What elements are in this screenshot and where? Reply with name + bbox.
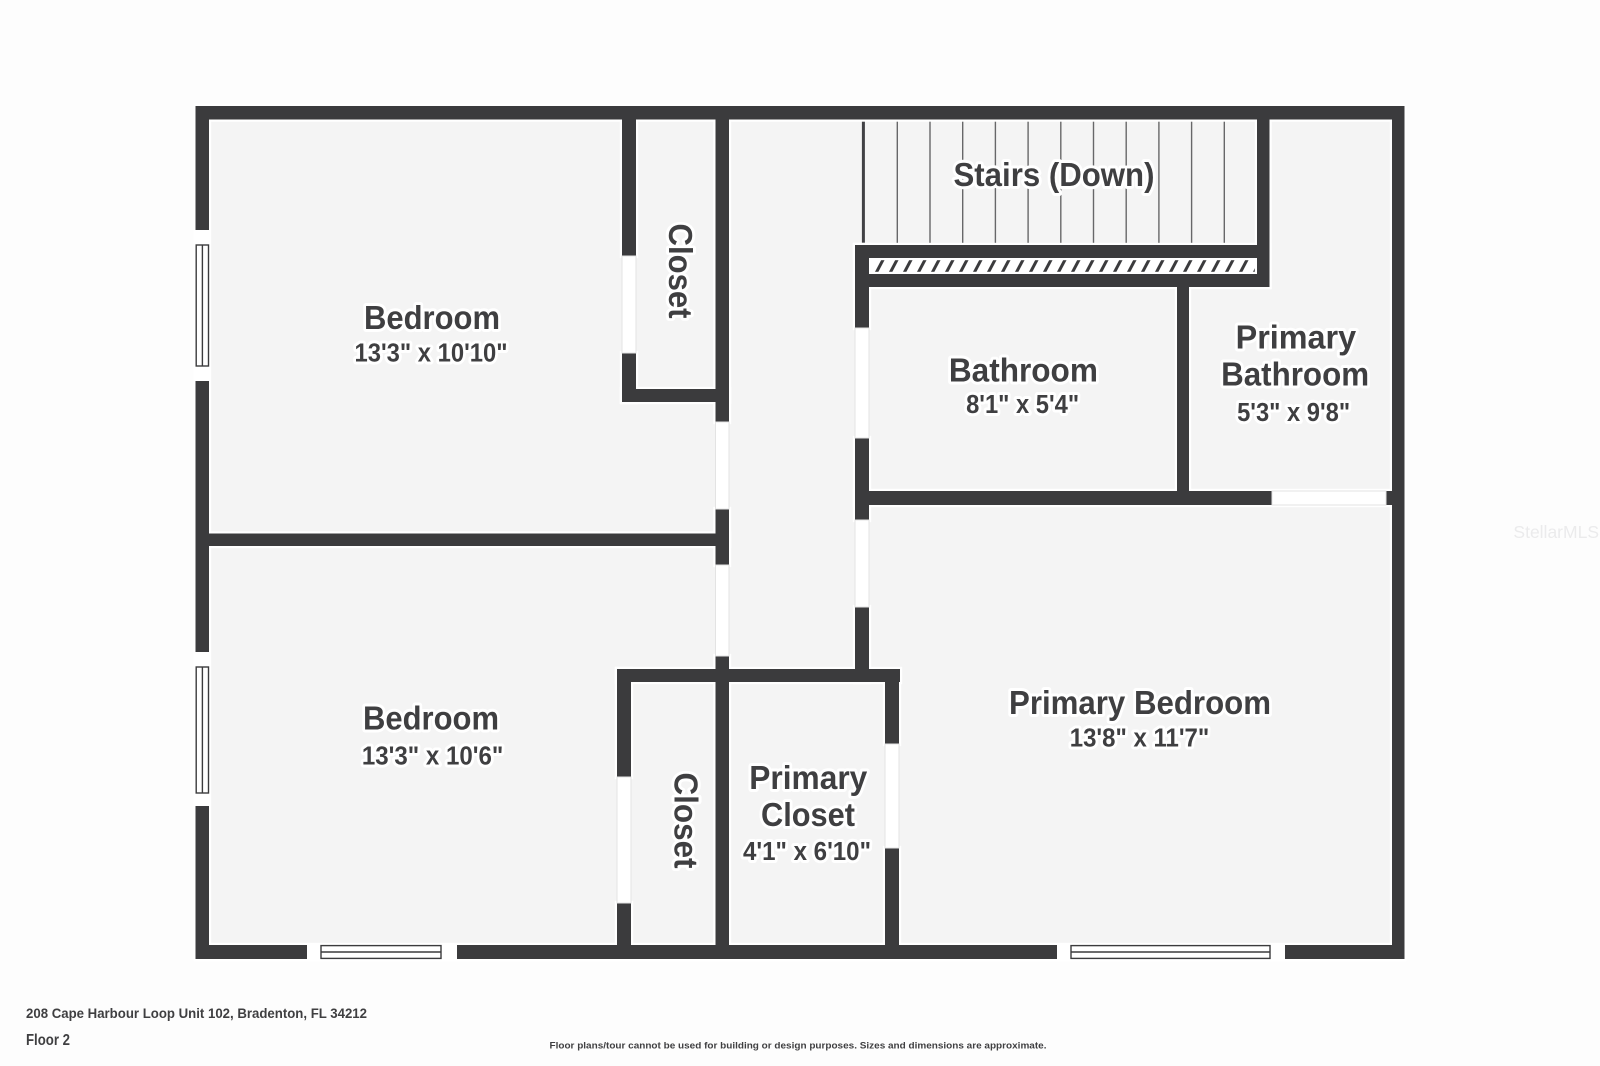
svg-text:Closet: Closet — [662, 224, 699, 319]
svg-text:5'3" x 9'8": 5'3" x 9'8" — [1237, 399, 1350, 427]
svg-text:Primary: Primary — [749, 759, 868, 796]
svg-text:208 Cape Harbour Loop Unit 102: 208 Cape Harbour Loop Unit 102, Bradento… — [26, 1006, 367, 1021]
svg-text:Floor plans/tour cannot be use: Floor plans/tour cannot be used for buil… — [550, 1041, 1047, 1052]
svg-text:13'3" x 10'10": 13'3" x 10'10" — [355, 339, 508, 367]
svg-text:Closet: Closet — [668, 773, 705, 869]
svg-text:Stairs (Down): Stairs (Down) — [954, 156, 1155, 193]
svg-text:8'1" x 5'4": 8'1" x 5'4" — [966, 391, 1079, 419]
svg-text:Bedroom: Bedroom — [364, 299, 500, 336]
svg-text:Primary: Primary — [1236, 318, 1357, 355]
svg-text:13'8" x 11'7": 13'8" x 11'7" — [1070, 725, 1210, 753]
svg-text:Floor 2: Floor 2 — [26, 1032, 70, 1049]
svg-text:Bathroom: Bathroom — [949, 351, 1098, 388]
svg-text:Bathroom: Bathroom — [1221, 356, 1369, 393]
svg-text:StellarMLS: StellarMLS — [1513, 522, 1599, 542]
svg-text:13'3" x 10'6": 13'3" x 10'6" — [362, 743, 504, 771]
svg-text:Primary Bedroom: Primary Bedroom — [1009, 684, 1271, 721]
svg-text:Bedroom: Bedroom — [363, 700, 499, 737]
svg-text:4'1" x 6'10": 4'1" x 6'10" — [743, 838, 871, 866]
svg-text:Closet: Closet — [761, 796, 855, 833]
